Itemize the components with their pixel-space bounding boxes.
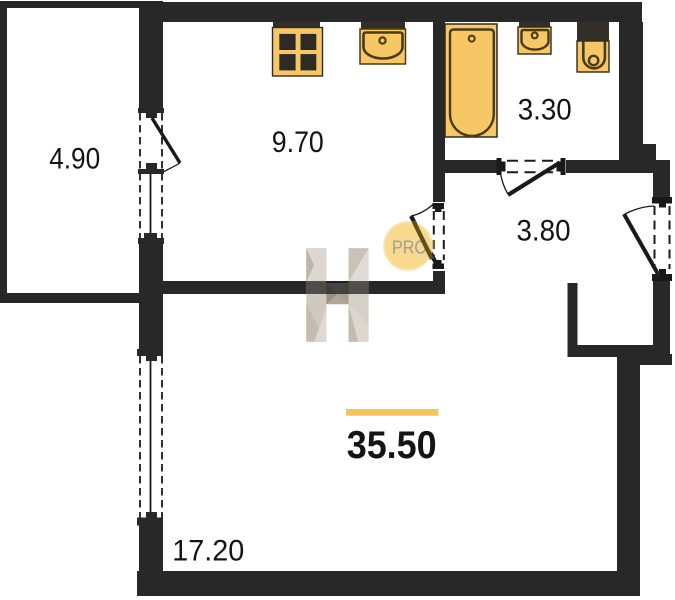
svg-text:9.70: 9.70 xyxy=(272,126,324,159)
svg-text:4.90: 4.90 xyxy=(49,142,100,175)
svg-text:3.30: 3.30 xyxy=(518,93,572,126)
svg-text:17.20: 17.20 xyxy=(172,535,244,568)
svg-text:3.80: 3.80 xyxy=(517,215,571,248)
svg-text:35.50: 35.50 xyxy=(347,424,437,467)
